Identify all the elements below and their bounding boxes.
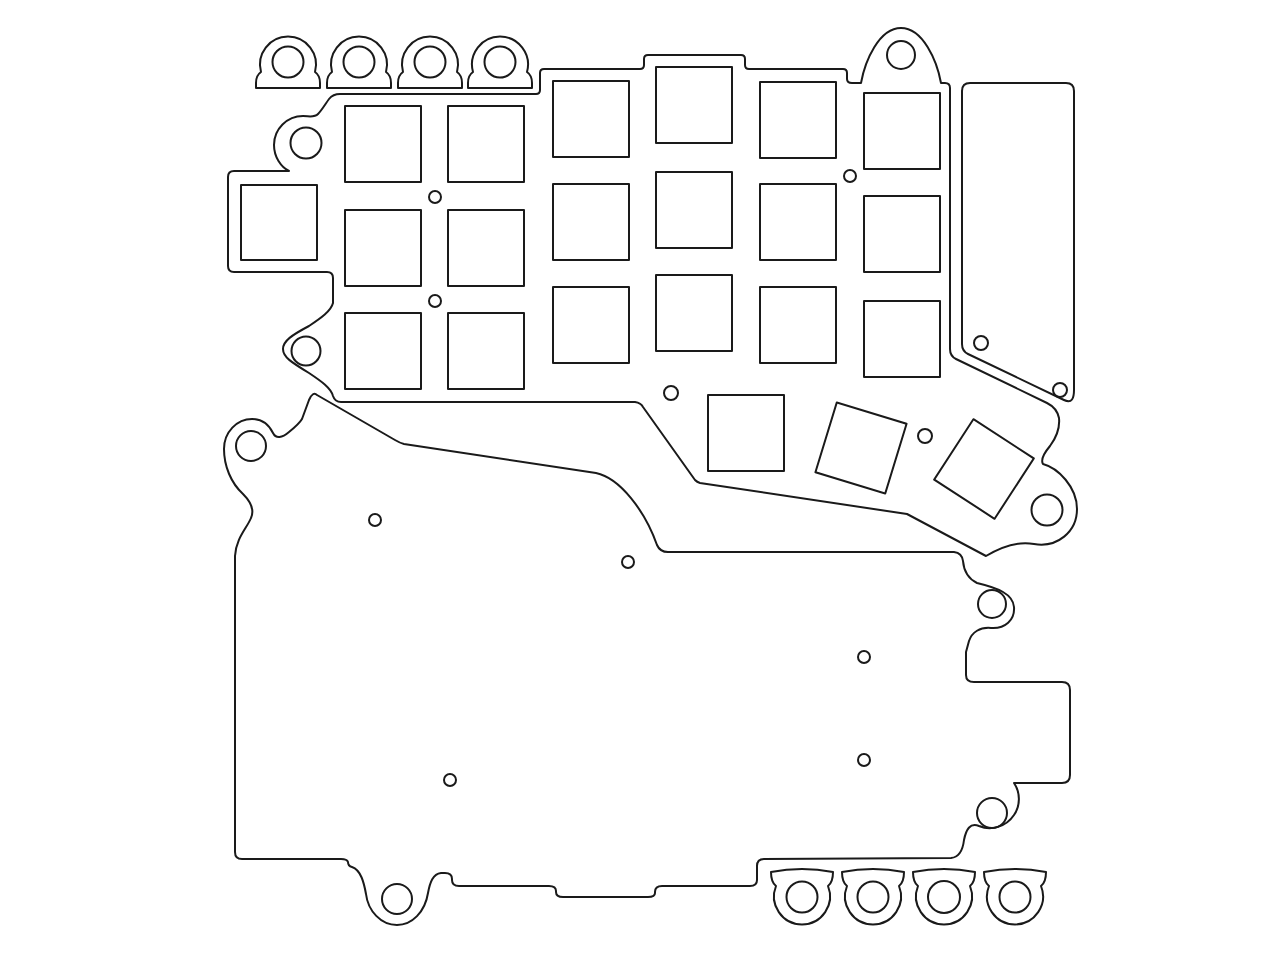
top-tab-1 [256,37,320,88]
plate-pin-hole-5 [918,429,932,443]
top-tab-2-hole [344,47,375,78]
bottom-tab-4-hole [1000,882,1031,913]
switch-cutout-c4-r1 [656,67,732,143]
plate-pin-hole-4 [664,386,678,400]
bottom-tab-3 [913,869,975,924]
switch-cutout-c1-r1 [345,106,421,182]
bottom-tab-2 [842,869,904,924]
bottom-plate-pin-hole-2 [622,556,634,568]
switch-cutout-c2-r2 [448,210,524,286]
plate-ear-hole-thumb [1032,495,1063,526]
bottom-tab-3-hole [928,881,960,913]
bottom-plate-pin-hole-1 [369,514,381,526]
side-extension-cutout [241,185,317,260]
bottom-tab-1-hole [787,882,818,913]
switch-cutout-c5-r3 [760,287,836,363]
switch-cutout-c5-r1 [760,82,836,158]
switch-cutout-c1-r2 [345,210,421,286]
bottom-tab-1 [771,869,833,924]
plate-ear-hole-left-bottom [292,337,321,366]
switch-cutout-c6-r3 [864,301,940,377]
cad-drawing-canvas [0,0,1280,960]
switch-cutout-c2-r3 [448,313,524,389]
switch-cutout-c4-r3 [656,275,732,351]
switch-cutout-c6-r2 [864,196,940,272]
switch-cutout-c6-r1 [864,93,940,169]
bottom-plate-ear-hole-right-bottom [977,798,1007,828]
plate-pin-hole-2 [429,295,441,307]
bottom-plate-tab-hole-bottom-left [382,884,412,914]
outline-drawing [0,0,1280,960]
bottom-plate-ear-hole-right-top [978,590,1006,618]
switch-cutout-c1-r3 [345,313,421,389]
switch-cutout-c4-r2 [656,172,732,248]
bottom-plate-pin-hole-4 [858,754,870,766]
bottom-plate-tab-hole-left [236,431,266,461]
bottom-plate-outline [224,394,1070,925]
switch-cutout-c3-r1 [553,81,629,157]
switch-cutout-c3-r2 [553,184,629,260]
side-panel-hole-2 [1053,383,1067,397]
switch-cutout-c3-r3 [553,287,629,363]
side-panel-hole-1 [974,336,988,350]
plate-ear-hole-top-right [887,41,915,69]
thumb-cutout-3 [934,419,1034,519]
top-tab-2 [327,37,391,88]
plate-pin-hole-1 [429,191,441,203]
bottom-tab-4 [984,869,1046,924]
top-tab-1-hole [273,47,304,78]
side-panel-outline [962,83,1074,401]
switch-cutout-c2-r1 [448,106,524,182]
top-tab-4-hole [485,47,516,78]
bottom-plate-pin-hole-3 [858,651,870,663]
top-tab-4 [468,37,532,88]
plate-ear-hole-left-top [291,128,322,159]
top-tab-3 [398,37,462,88]
plate-pin-hole-3 [844,170,856,182]
thumb-cutout-1 [708,395,784,471]
bottom-plate-pin-hole-5 [444,774,456,786]
switch-cutout-c5-r2 [760,184,836,260]
switch-plate-outline [228,28,1077,556]
thumb-cutout-2 [815,402,906,493]
bottom-tab-2-hole [858,882,889,913]
top-tab-3-hole [415,47,446,78]
